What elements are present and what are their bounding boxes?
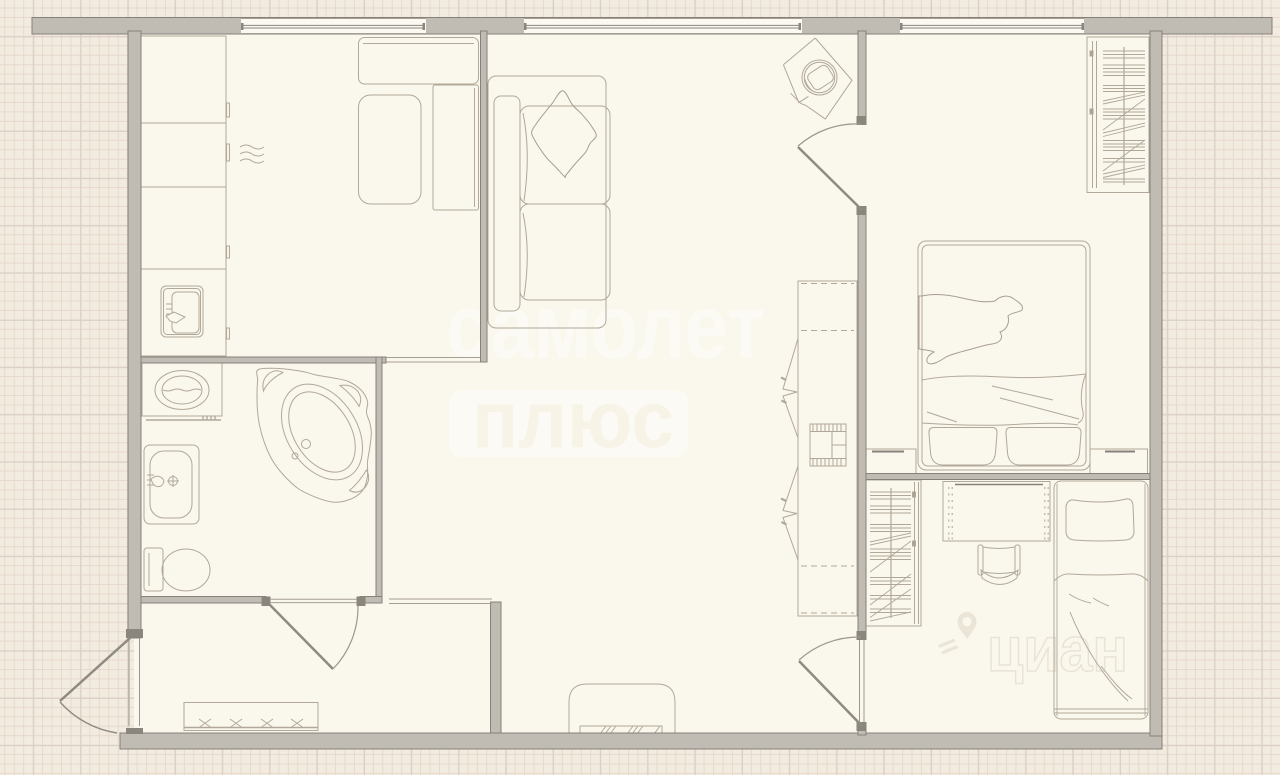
svg-text:циан: циан	[987, 615, 1128, 685]
svg-text:плюс: плюс	[472, 375, 674, 465]
